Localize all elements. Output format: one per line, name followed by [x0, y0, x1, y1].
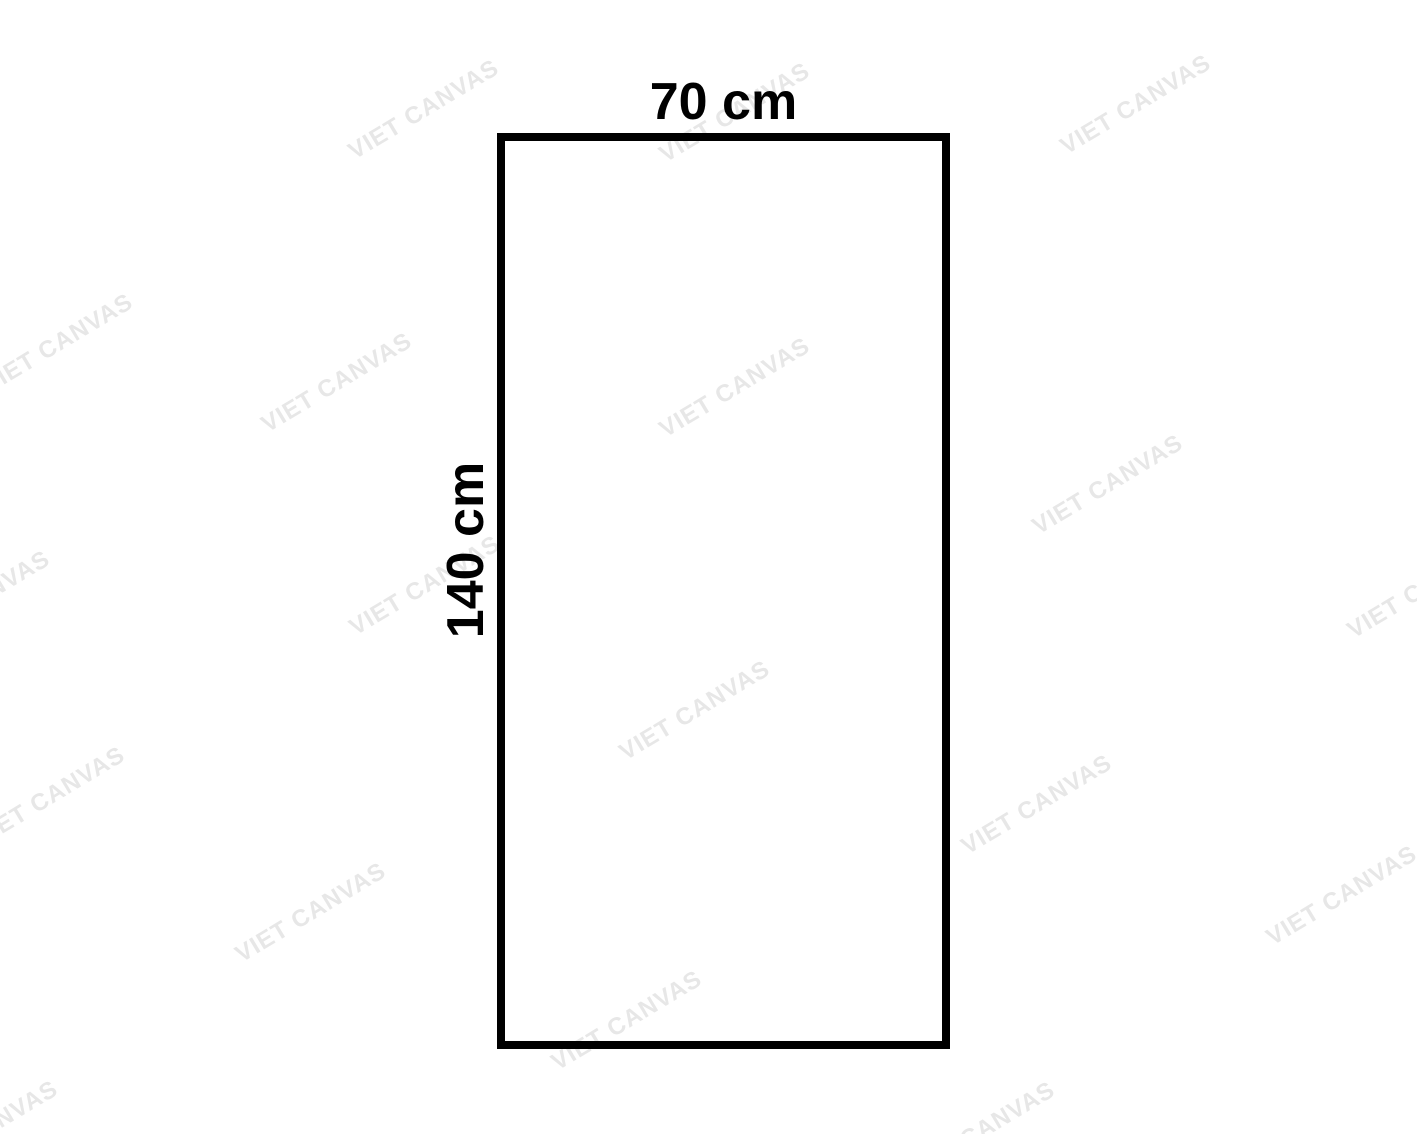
watermark-text: VIET CANVAS [957, 749, 1118, 861]
dimension-diagram: VIET CANVASVIET CANVASVIET CANVASVIET CA… [0, 0, 1417, 1134]
watermark-text: VIET CANVAS [0, 741, 130, 853]
watermark-text: VIET CANVAS [0, 545, 55, 657]
watermark-text: VIET CANVAS [900, 1076, 1061, 1134]
watermark-text: VIET CANVAS [231, 857, 392, 969]
watermark-text: VIET CANVAS [1262, 840, 1417, 952]
watermark-text: VIET CANVAS [0, 1075, 63, 1134]
watermark-text: VIET CANVAS [0, 288, 138, 400]
height-dimension-label: 140 cm [440, 462, 492, 638]
watermark-text: VIET CANVAS [257, 327, 418, 439]
watermark-text: VIET CANVAS [1056, 49, 1217, 161]
watermark-text: VIET CANVAS [1028, 429, 1189, 541]
watermark-text: VIET CANVAS [1343, 533, 1417, 645]
canvas-rectangle [497, 133, 950, 1049]
watermark-text: VIET CANVAS [344, 54, 505, 166]
width-dimension-label: 70 cm [497, 76, 950, 128]
